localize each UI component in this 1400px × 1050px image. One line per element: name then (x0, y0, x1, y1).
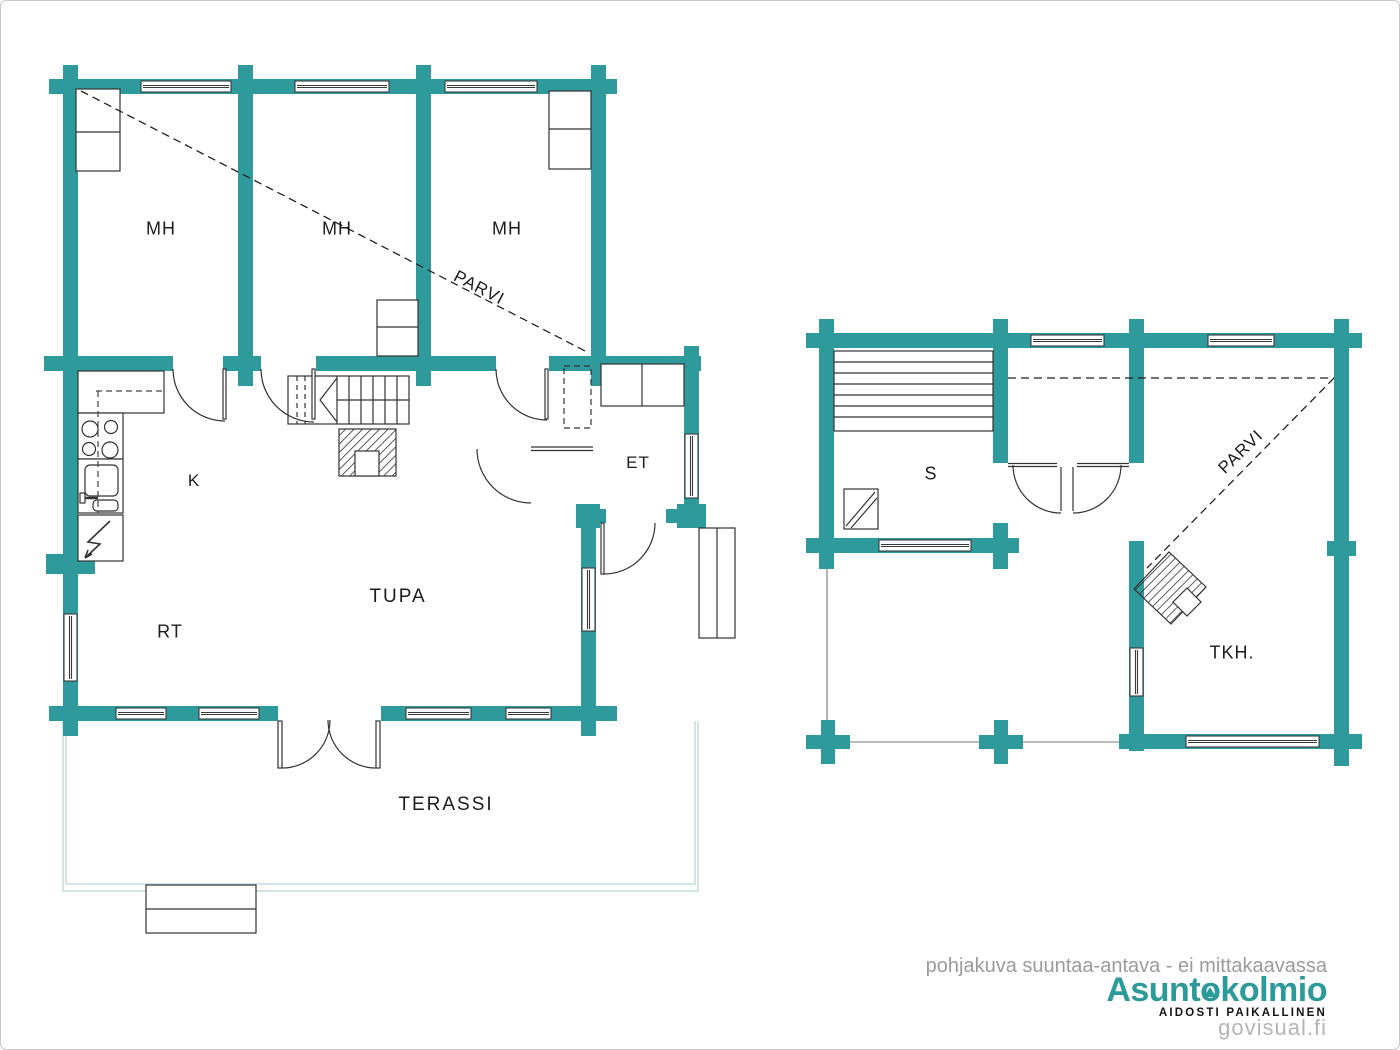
brand-logo: Asuntokolmio (1106, 973, 1327, 1007)
watermark-text: govisual.fi (1218, 1015, 1327, 1041)
room-label-bedroom-1: MH (146, 219, 176, 240)
room-label-tkh: TKH. (1209, 643, 1254, 664)
brand-suffix: kolmio (1220, 971, 1327, 1009)
sauna-terrace-lines (827, 569, 1119, 742)
floorplan-sheet: MH MH MH PARVI K ET RT TUPA TERASSI S PA… (0, 0, 1400, 1050)
room-label-rt: RT (157, 622, 183, 643)
room-label-entry: ET (626, 453, 650, 473)
room-label-sauna: S (924, 464, 937, 485)
sauna-floor-doors (1008, 464, 1129, 514)
room-label-terrace: TERASSI (398, 794, 493, 816)
room-label-living: TUPA (369, 586, 426, 608)
room-label-bedroom-3: MH (492, 219, 522, 240)
room-label-kitchen: K (188, 471, 200, 491)
room-label-bedroom-2: MH (322, 219, 352, 240)
house-triangle-icon (1204, 987, 1216, 997)
sauna-floor-fixtures (834, 351, 1206, 624)
brand-prefix: Asunt (1106, 971, 1200, 1009)
floorplan-linework (1, 1, 1400, 1050)
brand-house-o: o (1200, 973, 1220, 1007)
sauna-loft-dashed-line (1008, 378, 1334, 568)
